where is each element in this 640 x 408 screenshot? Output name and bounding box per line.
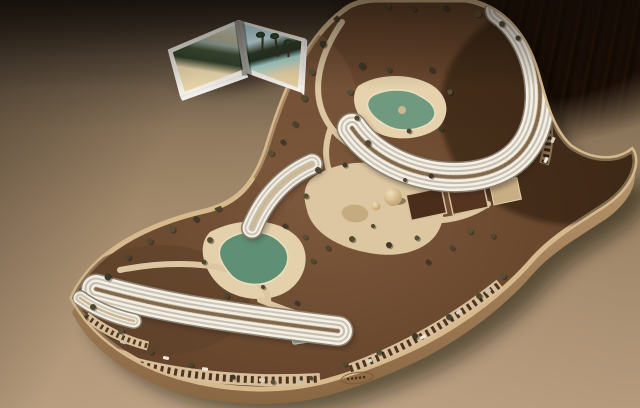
small-dome <box>372 202 381 211</box>
tree <box>429 174 434 179</box>
tree <box>202 260 207 265</box>
tree <box>447 89 452 94</box>
tree <box>376 349 382 355</box>
tree <box>476 293 482 299</box>
tree <box>429 67 435 73</box>
tree <box>359 63 366 70</box>
tree <box>371 224 375 228</box>
tree <box>439 127 444 132</box>
tree <box>231 375 236 380</box>
tree <box>354 115 359 120</box>
tree <box>415 236 420 241</box>
tree <box>105 274 112 281</box>
tree <box>475 11 482 18</box>
pool-island <box>398 106 406 114</box>
tree <box>450 246 455 251</box>
tree-shadow <box>547 62 553 68</box>
tree <box>303 193 308 198</box>
tree <box>499 21 505 27</box>
tree <box>426 260 431 265</box>
tree <box>343 163 348 168</box>
tree <box>558 82 563 87</box>
tree <box>412 333 418 339</box>
tree <box>292 121 298 127</box>
tree <box>295 301 300 306</box>
tree <box>193 216 199 222</box>
tree <box>385 3 391 9</box>
tree <box>268 150 274 156</box>
tree <box>343 362 348 367</box>
car-model <box>297 380 303 383</box>
tree <box>303 235 308 240</box>
palm-tree-icon <box>256 31 265 37</box>
tree <box>443 5 449 11</box>
palm-tree-icon <box>283 39 292 45</box>
tree <box>207 237 213 243</box>
tree <box>309 376 313 380</box>
open-magazine <box>154 2 319 108</box>
tree <box>500 273 506 279</box>
tree <box>90 304 96 310</box>
tree <box>169 226 176 233</box>
tree <box>349 236 355 242</box>
tree <box>315 167 321 173</box>
tree <box>280 139 285 144</box>
tree <box>403 178 407 182</box>
tree <box>125 254 131 260</box>
palm-tree-icon <box>270 33 279 39</box>
car-model <box>259 378 265 382</box>
tree <box>515 35 520 40</box>
tree <box>261 285 265 289</box>
palm-tree-icon <box>261 37 263 53</box>
tree <box>325 245 330 250</box>
tree <box>320 41 327 48</box>
tree <box>386 242 392 248</box>
tree <box>467 228 473 234</box>
tree <box>149 350 154 355</box>
photo-backdrop <box>0 0 640 408</box>
tree-shadow <box>560 84 565 89</box>
tree <box>546 61 552 67</box>
tree <box>147 238 153 244</box>
tree <box>407 129 412 134</box>
dome-pavilion <box>384 188 402 206</box>
tree <box>365 140 371 146</box>
tree <box>386 67 391 72</box>
tree <box>271 380 276 385</box>
tree <box>446 314 452 320</box>
tree <box>283 224 288 229</box>
resort-site-model <box>0 0 640 408</box>
tree <box>491 234 496 239</box>
tree <box>189 363 194 368</box>
tree <box>347 89 353 95</box>
tree <box>118 328 124 334</box>
tree <box>225 294 230 299</box>
tree <box>411 6 416 11</box>
tree <box>311 259 316 264</box>
